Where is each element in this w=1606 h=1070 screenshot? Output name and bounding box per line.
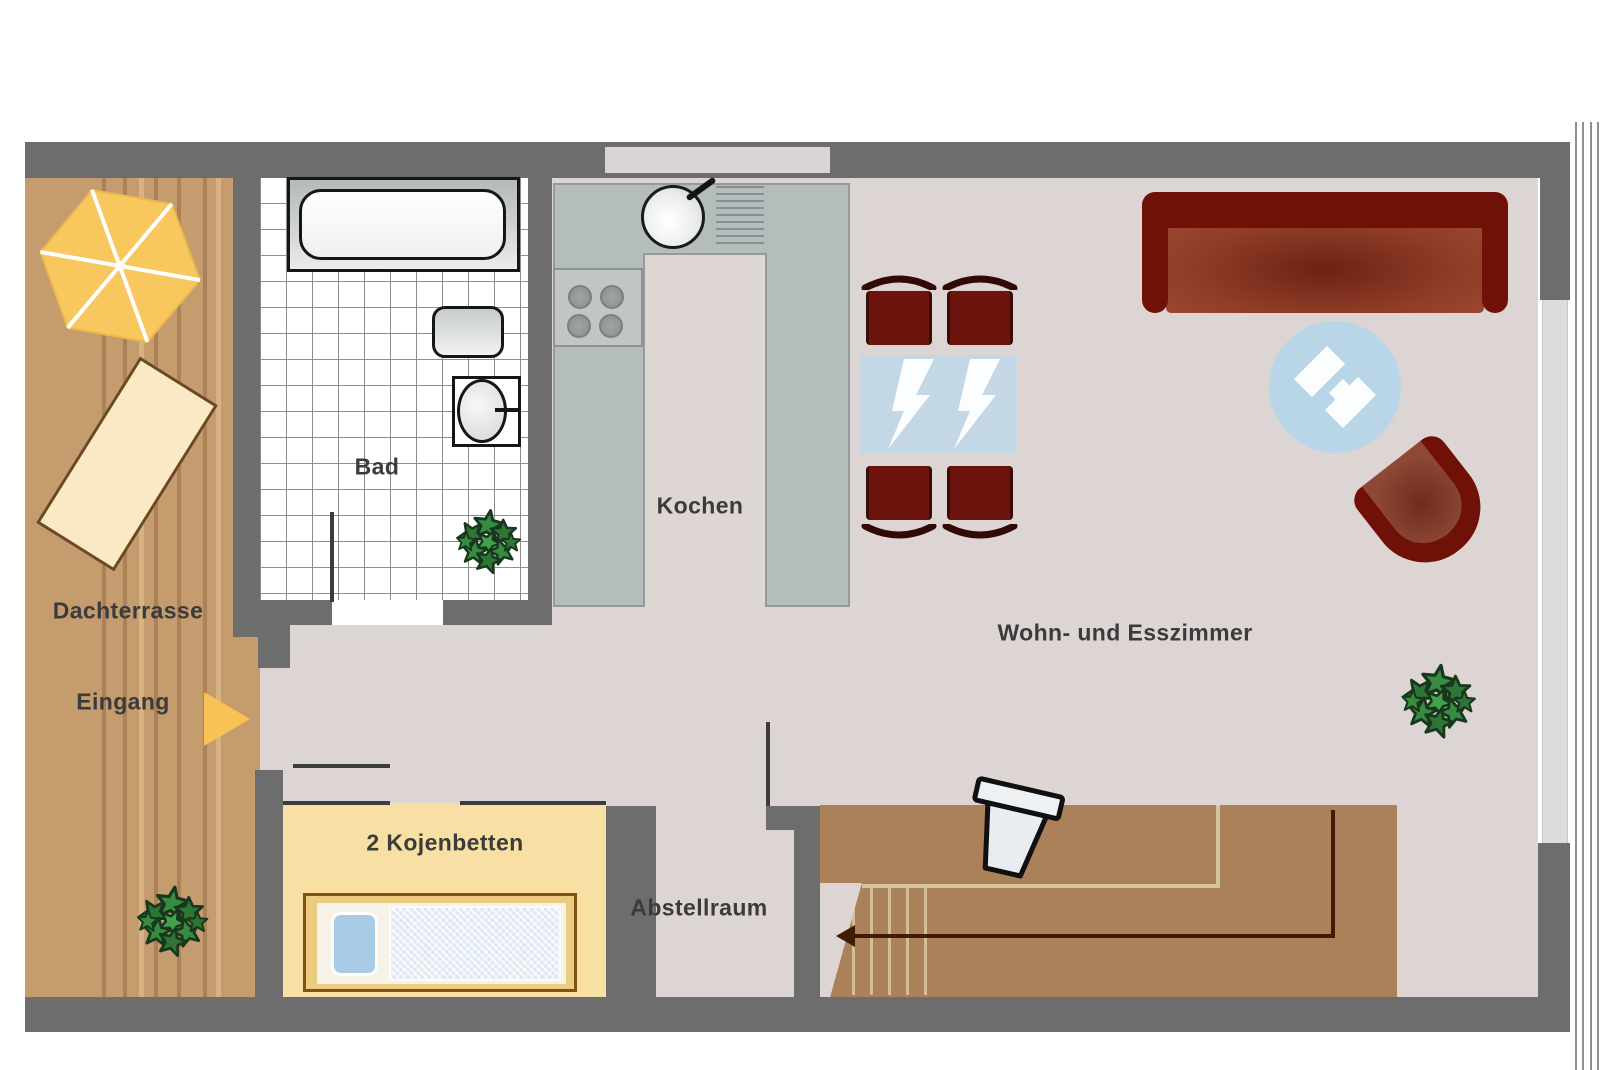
coffee-table	[1269, 321, 1401, 453]
plant-icon	[126, 880, 218, 970]
wall-bath-bottom-left	[258, 600, 332, 625]
right-glass-window	[1542, 300, 1568, 843]
dining-chair	[947, 291, 1013, 345]
sofa-seat	[1166, 216, 1484, 313]
dining-chair	[866, 291, 932, 345]
entrance-arrow-icon	[204, 692, 250, 746]
terrace-plank-line	[216, 177, 221, 997]
dining-table	[860, 355, 1017, 453]
label-kitchen: Kochen	[657, 493, 744, 520]
stove-burner	[568, 285, 592, 309]
corridor-partition-line	[293, 764, 390, 768]
sofa-armrest	[1482, 192, 1508, 313]
chair-back-arc	[942, 524, 1018, 540]
stove-burner	[567, 314, 591, 338]
bath-door-threshold	[332, 600, 443, 625]
sofa	[1142, 192, 1508, 313]
wall-terrace-lower	[255, 770, 283, 997]
wall-corridor-stub	[258, 620, 290, 668]
stair-step-line	[906, 888, 909, 995]
dining-chair	[866, 466, 932, 520]
wall-bath-kitchen	[528, 178, 552, 625]
dining-chair	[947, 466, 1013, 520]
bed-pillow	[331, 912, 378, 976]
stair-step-line	[888, 888, 891, 995]
armchair-frame	[1348, 430, 1502, 584]
sun-umbrella-icon	[23, 169, 218, 366]
armchair	[1350, 444, 1500, 572]
plant-icon	[1390, 658, 1486, 752]
wall-right-lower	[1538, 843, 1570, 997]
label-terrace: Dachterrasse	[53, 598, 204, 625]
toilet-flush-line	[495, 408, 521, 412]
chair-back-arc	[861, 524, 937, 540]
wall-bath-bottom-right	[443, 600, 552, 625]
plant-icon	[446, 504, 530, 586]
wall-bottom	[25, 997, 1570, 1032]
label-bathroom: Bad	[355, 454, 400, 481]
wall-terrace-upper	[233, 178, 260, 637]
stairs-direction-arrow	[852, 934, 1335, 938]
bed-mattress	[389, 906, 561, 981]
edge-line	[1575, 122, 1577, 1070]
kitchen-inner-floor	[643, 253, 767, 607]
label-bunk-room: 2 Kojenbetten	[366, 830, 523, 857]
label-entrance: Eingang	[76, 689, 170, 716]
bunk-room-wall-line	[460, 801, 606, 805]
bathtub-basin	[299, 189, 506, 260]
stairs-direction-arrow	[1331, 810, 1335, 938]
sofa-backrest	[1142, 192, 1508, 228]
edge-line	[1597, 122, 1599, 1070]
stair-step-line	[924, 888, 927, 995]
floor-plan: Dachterrasse Eingang Bad Kochen Wohn- un…	[0, 0, 1606, 1070]
storage-door-leaf	[766, 722, 770, 806]
stove-burner	[600, 285, 624, 309]
stove	[553, 268, 643, 347]
edge-line	[1582, 122, 1584, 1070]
chair-back-arc	[861, 274, 937, 290]
wall-storage-right	[794, 806, 820, 997]
bath-door-leaf	[330, 512, 334, 602]
stairs-arrow-head-icon	[836, 925, 855, 947]
edge-line	[1590, 122, 1592, 1070]
wall-right-upper	[1540, 178, 1570, 300]
bunk-room-wall-line	[283, 801, 390, 805]
label-storage: Abstellraum	[630, 895, 767, 922]
stair-guide-line	[1216, 805, 1220, 888]
sofa-armrest	[1142, 192, 1168, 313]
wall-storage-stub	[766, 806, 820, 830]
chair-back-arc	[942, 274, 1018, 290]
top-wall-window	[605, 147, 830, 173]
terrace-plank-line	[203, 177, 207, 997]
drainer-lines	[716, 186, 764, 247]
stove-burner	[599, 314, 623, 338]
stair-step-line	[870, 888, 873, 995]
label-living-dining: Wohn- und Esszimmer	[997, 620, 1252, 647]
washbasin	[432, 306, 504, 358]
